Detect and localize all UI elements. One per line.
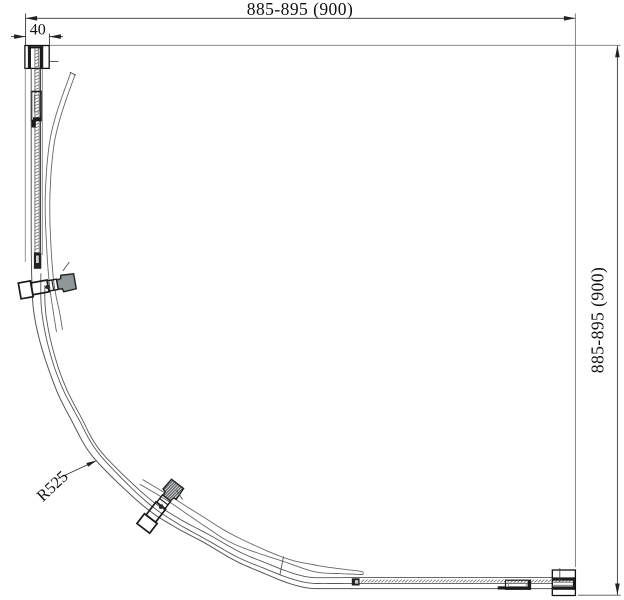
svg-text:40: 40 [30, 21, 46, 38]
svg-text:885-895 (900): 885-895 (900) [588, 267, 608, 373]
svg-text:885-895 (900): 885-895 (900) [247, 0, 353, 19]
